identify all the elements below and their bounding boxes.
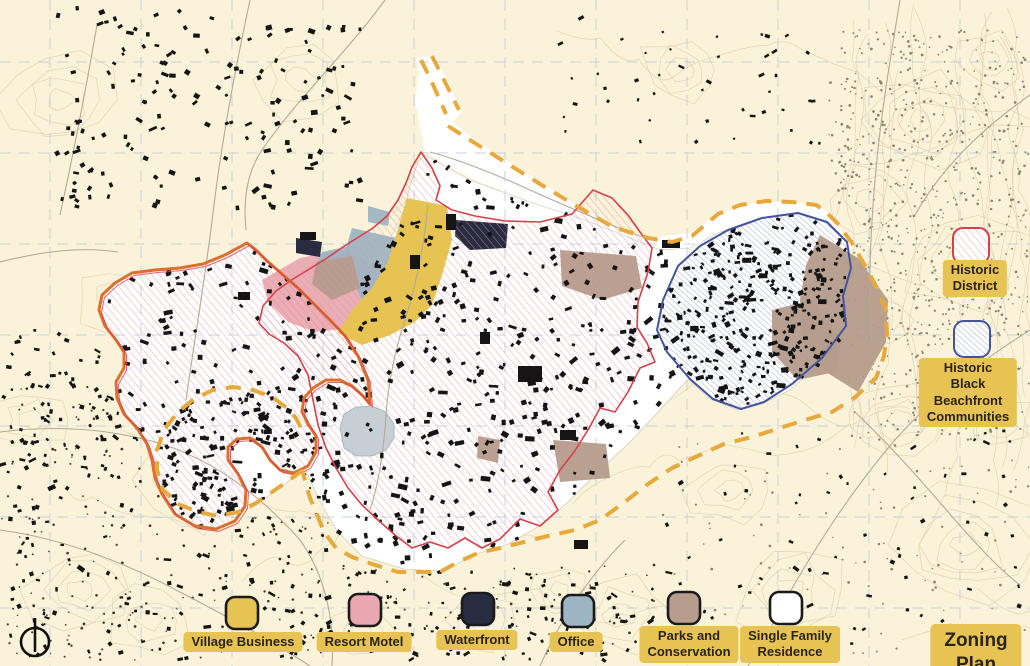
resort-motel-label: Resort Motel xyxy=(317,632,412,652)
zoning-plan-map: Village Business Resort Motel Waterfront… xyxy=(0,0,1030,666)
map-canvas xyxy=(0,0,1030,666)
single-family-swatch xyxy=(767,589,805,627)
office-label: Office xyxy=(550,632,603,652)
historic-district-label: Historic District xyxy=(943,260,1007,297)
beachfront-communities-label: Historic Black Beachfront Communities xyxy=(919,358,1017,427)
map-title: Zoning Plan xyxy=(930,624,1021,666)
beachfront-communities-swatch xyxy=(951,318,993,360)
single-family-label: Single Family Residence xyxy=(740,626,840,663)
waterfront-swatch xyxy=(459,590,497,628)
village-business-label: Village Business xyxy=(183,632,302,652)
parks-label: Parks and Conservation xyxy=(639,626,738,663)
village-business-swatch xyxy=(223,594,261,632)
office-swatch xyxy=(559,592,597,630)
resort-motel-swatch xyxy=(346,591,384,629)
parks-swatch xyxy=(665,589,703,627)
waterfront-label: Waterfront xyxy=(436,630,517,650)
